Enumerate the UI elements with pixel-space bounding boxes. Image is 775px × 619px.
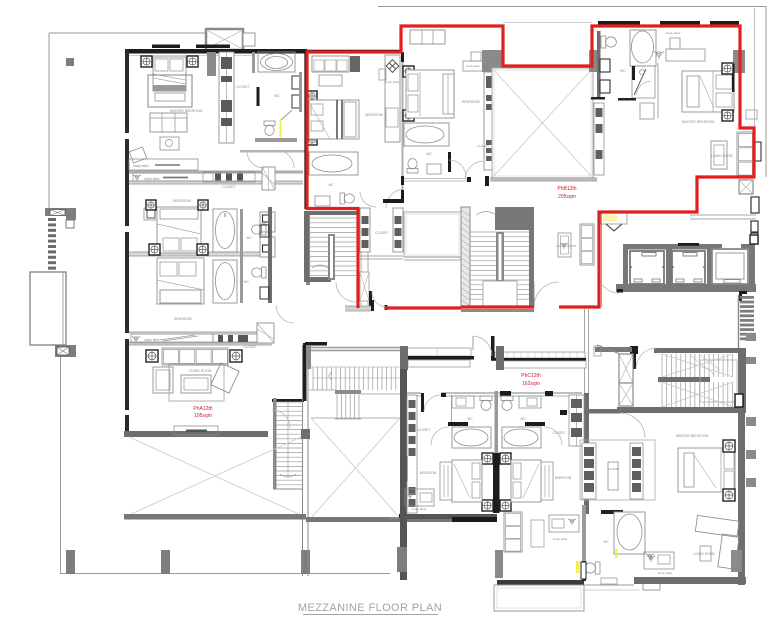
svg-text:BEDROOM: BEDROOM — [365, 113, 383, 117]
svg-text:MASTER BEDROOM: MASTER BEDROOM — [682, 120, 715, 124]
svg-text:study table: study table — [144, 177, 160, 181]
svg-text:BEDROOM: BEDROOM — [174, 317, 192, 321]
svg-text:BEDROOM: BEDROOM — [555, 476, 572, 480]
svg-text:LIVING ROOM: LIVING ROOM — [189, 369, 212, 373]
svg-text:study table: study table — [412, 507, 427, 511]
svg-text:CLOSET: CLOSET — [418, 428, 431, 432]
svg-text:CLOSET: CLOSET — [222, 185, 236, 189]
svg-text:study table: study table — [144, 338, 160, 342]
svg-text:MASTER BEDROOM: MASTER BEDROOM — [676, 434, 709, 438]
svg-text:195sqm: 195sqm — [194, 413, 212, 419]
svg-text:MEZZANINE FLOOR PLAN: MEZZANINE FLOOR PLAN — [298, 602, 442, 614]
svg-text:CLOSET: CLOSET — [236, 85, 250, 89]
svg-text:WC: WC — [246, 236, 252, 240]
svg-text:CLOSET: CLOSET — [608, 467, 619, 471]
svg-text:MASTER BEDROOM: MASTER BEDROOM — [170, 109, 203, 113]
svg-text:WC: WC — [274, 94, 280, 98]
svg-text:162sqm: 162sqm — [522, 381, 540, 387]
svg-text:WC: WC — [426, 152, 432, 156]
svg-text:study table: study table — [133, 164, 149, 168]
svg-text:LIVING ROOM: LIVING ROOM — [556, 244, 577, 248]
svg-text:WC: WC — [243, 280, 249, 284]
svg-text:CLOSET: CLOSET — [477, 144, 489, 148]
svg-text:CLOSET: CLOSET — [243, 345, 257, 349]
svg-text:WC: WC — [603, 540, 609, 544]
svg-text:WC: WC — [520, 417, 526, 421]
svg-text:study table: study table — [553, 537, 568, 541]
svg-text:WC: WC — [620, 69, 626, 73]
svg-text:LIVING ROOM: LIVING ROOM — [711, 154, 733, 158]
svg-text:PhA12th: PhA12th — [193, 406, 212, 412]
svg-text:BEDROOM: BEDROOM — [420, 471, 437, 475]
svg-text:BEDROOM: BEDROOM — [173, 199, 191, 203]
svg-text:PhB12th: PhB12th — [557, 186, 576, 192]
svg-text:study table: study table — [666, 31, 681, 35]
svg-text:BEDROOM: BEDROOM — [462, 100, 480, 104]
svg-text:study table: study table — [466, 64, 480, 68]
svg-text:WC: WC — [467, 417, 473, 421]
svg-text:LIVING ROOM: LIVING ROOM — [693, 552, 715, 556]
svg-text:CLOSET: CLOSET — [375, 231, 389, 235]
svg-text:PhC12th: PhC12th — [521, 373, 541, 379]
svg-text:WC: WC — [328, 183, 334, 187]
svg-text:study table: study table — [385, 80, 400, 84]
svg-text:205sqm: 205sqm — [558, 194, 576, 200]
svg-text:CLOSET: CLOSET — [553, 431, 566, 435]
svg-text:study table: study table — [658, 571, 673, 575]
